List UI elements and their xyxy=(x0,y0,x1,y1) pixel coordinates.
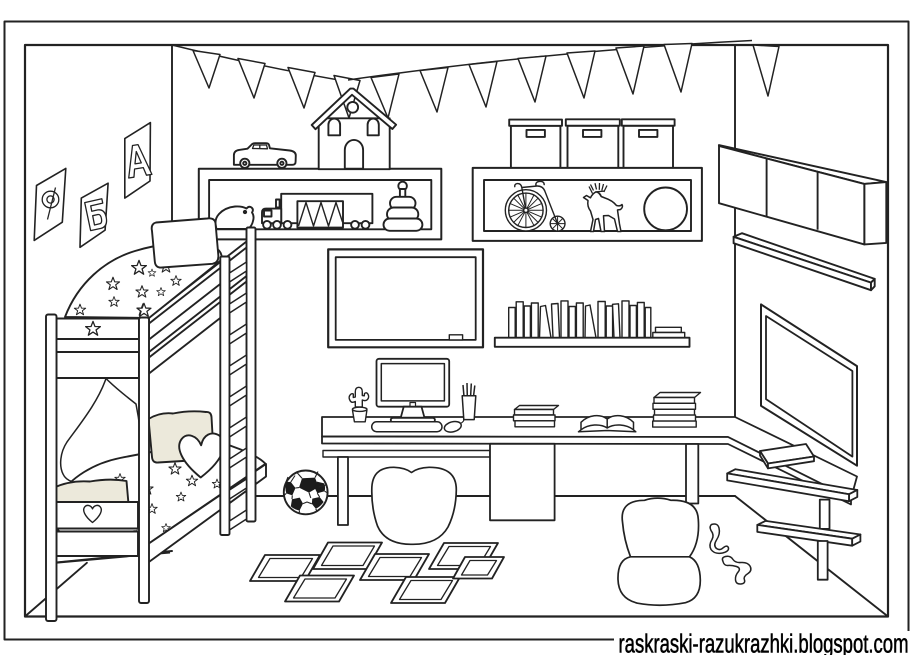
svg-text:raskraski-razukrazhki.blogspot: raskraski-razukrazhki.blogspot.com xyxy=(619,631,909,655)
